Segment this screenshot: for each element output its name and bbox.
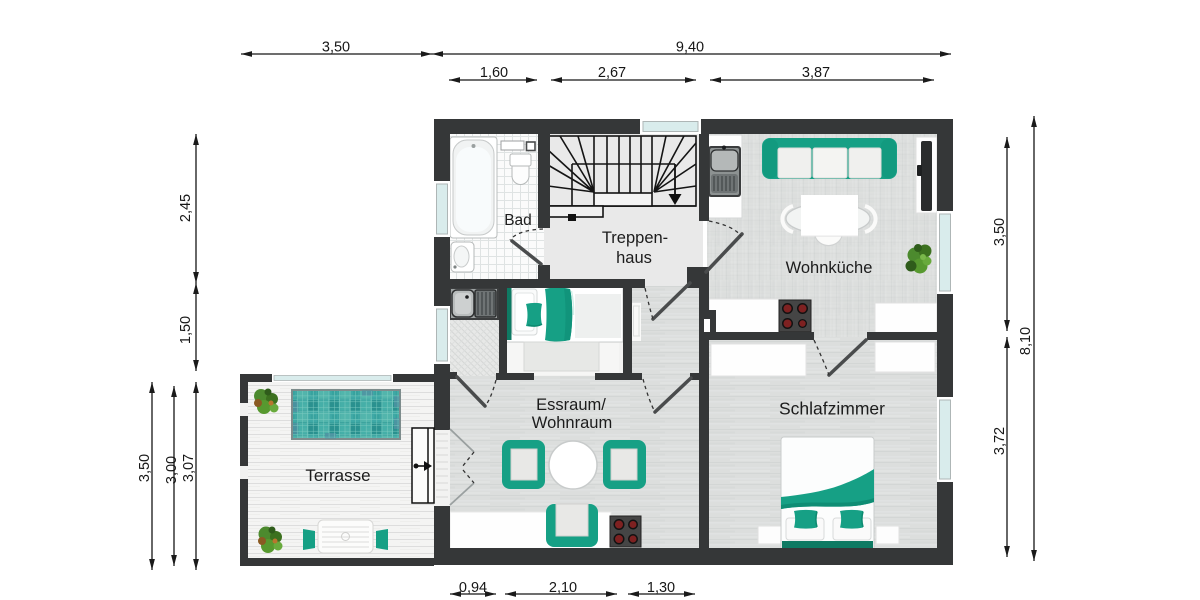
svg-text:3,87: 3,87: [802, 65, 830, 81]
svg-text:3,00: 3,00: [164, 456, 180, 484]
svg-text:3,50: 3,50: [992, 218, 1008, 246]
svg-text:1,30: 1,30: [647, 580, 675, 596]
svg-text:2,45: 2,45: [178, 194, 194, 222]
svg-text:8,10: 8,10: [1018, 327, 1034, 355]
svg-text:0,94: 0,94: [459, 580, 487, 596]
svg-text:3,50: 3,50: [322, 40, 350, 56]
svg-text:1,50: 1,50: [178, 316, 194, 344]
svg-text:3,72: 3,72: [992, 427, 1008, 455]
svg-text:Schlafzimmer: Schlafzimmer: [779, 399, 885, 419]
svg-text:Essraum/: Essraum/: [536, 396, 606, 414]
svg-text:3,50: 3,50: [137, 454, 153, 482]
svg-text:Terrasse: Terrasse: [305, 466, 370, 485]
svg-text:Wohnraum: Wohnraum: [532, 414, 612, 432]
svg-text:2,67: 2,67: [598, 65, 626, 81]
svg-text:1,60: 1,60: [480, 65, 508, 81]
svg-text:9,40: 9,40: [676, 40, 704, 56]
svg-text:2,10: 2,10: [549, 580, 577, 596]
svg-text:Wohnküche: Wohnküche: [786, 259, 873, 277]
svg-text:Bad: Bad: [504, 212, 532, 229]
svg-text:haus: haus: [616, 249, 652, 267]
svg-text:3,07: 3,07: [181, 454, 197, 482]
svg-text:Treppen-: Treppen-: [602, 229, 668, 247]
